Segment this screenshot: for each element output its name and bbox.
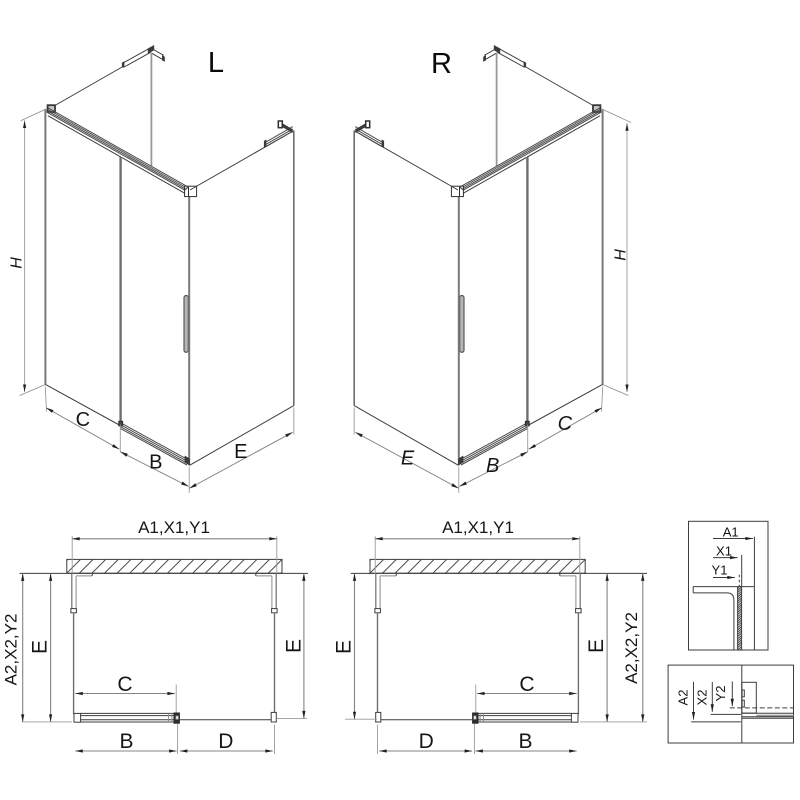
svg-text:H: H <box>9 257 26 269</box>
svg-text:E: E <box>401 448 415 470</box>
svg-text:A1,X1,Y1: A1,X1,Y1 <box>442 518 514 537</box>
svg-text:H: H <box>613 249 630 261</box>
svg-text:E: E <box>585 639 608 653</box>
svg-text:E: E <box>29 640 52 654</box>
svg-text:C: C <box>117 673 132 696</box>
svg-text:B: B <box>119 730 133 753</box>
svg-text:X2: X2 <box>695 690 710 706</box>
svg-text:R: R <box>431 48 452 80</box>
svg-text:Y1: Y1 <box>712 562 728 577</box>
svg-text:D: D <box>218 730 233 753</box>
svg-text:E: E <box>333 640 356 654</box>
svg-text:Y2: Y2 <box>713 686 728 702</box>
svg-text:A1: A1 <box>723 524 739 539</box>
svg-text:D: D <box>419 730 434 753</box>
svg-text:A2,X2,Y2: A2,X2,Y2 <box>2 614 21 686</box>
svg-text:A2,X2,Y2: A2,X2,Y2 <box>622 612 641 684</box>
svg-text:A2: A2 <box>675 690 690 706</box>
svg-text:C: C <box>558 413 573 435</box>
svg-text:C: C <box>519 673 534 696</box>
svg-text:B: B <box>149 451 162 473</box>
svg-text:A1,X1,Y1: A1,X1,Y1 <box>138 518 210 537</box>
svg-text:B: B <box>486 455 499 477</box>
svg-text:X1: X1 <box>716 544 732 559</box>
svg-text:E: E <box>283 639 306 653</box>
svg-text:L: L <box>208 47 224 79</box>
svg-text:C: C <box>76 409 90 431</box>
svg-text:B: B <box>518 730 532 753</box>
svg-text:E: E <box>234 441 247 463</box>
